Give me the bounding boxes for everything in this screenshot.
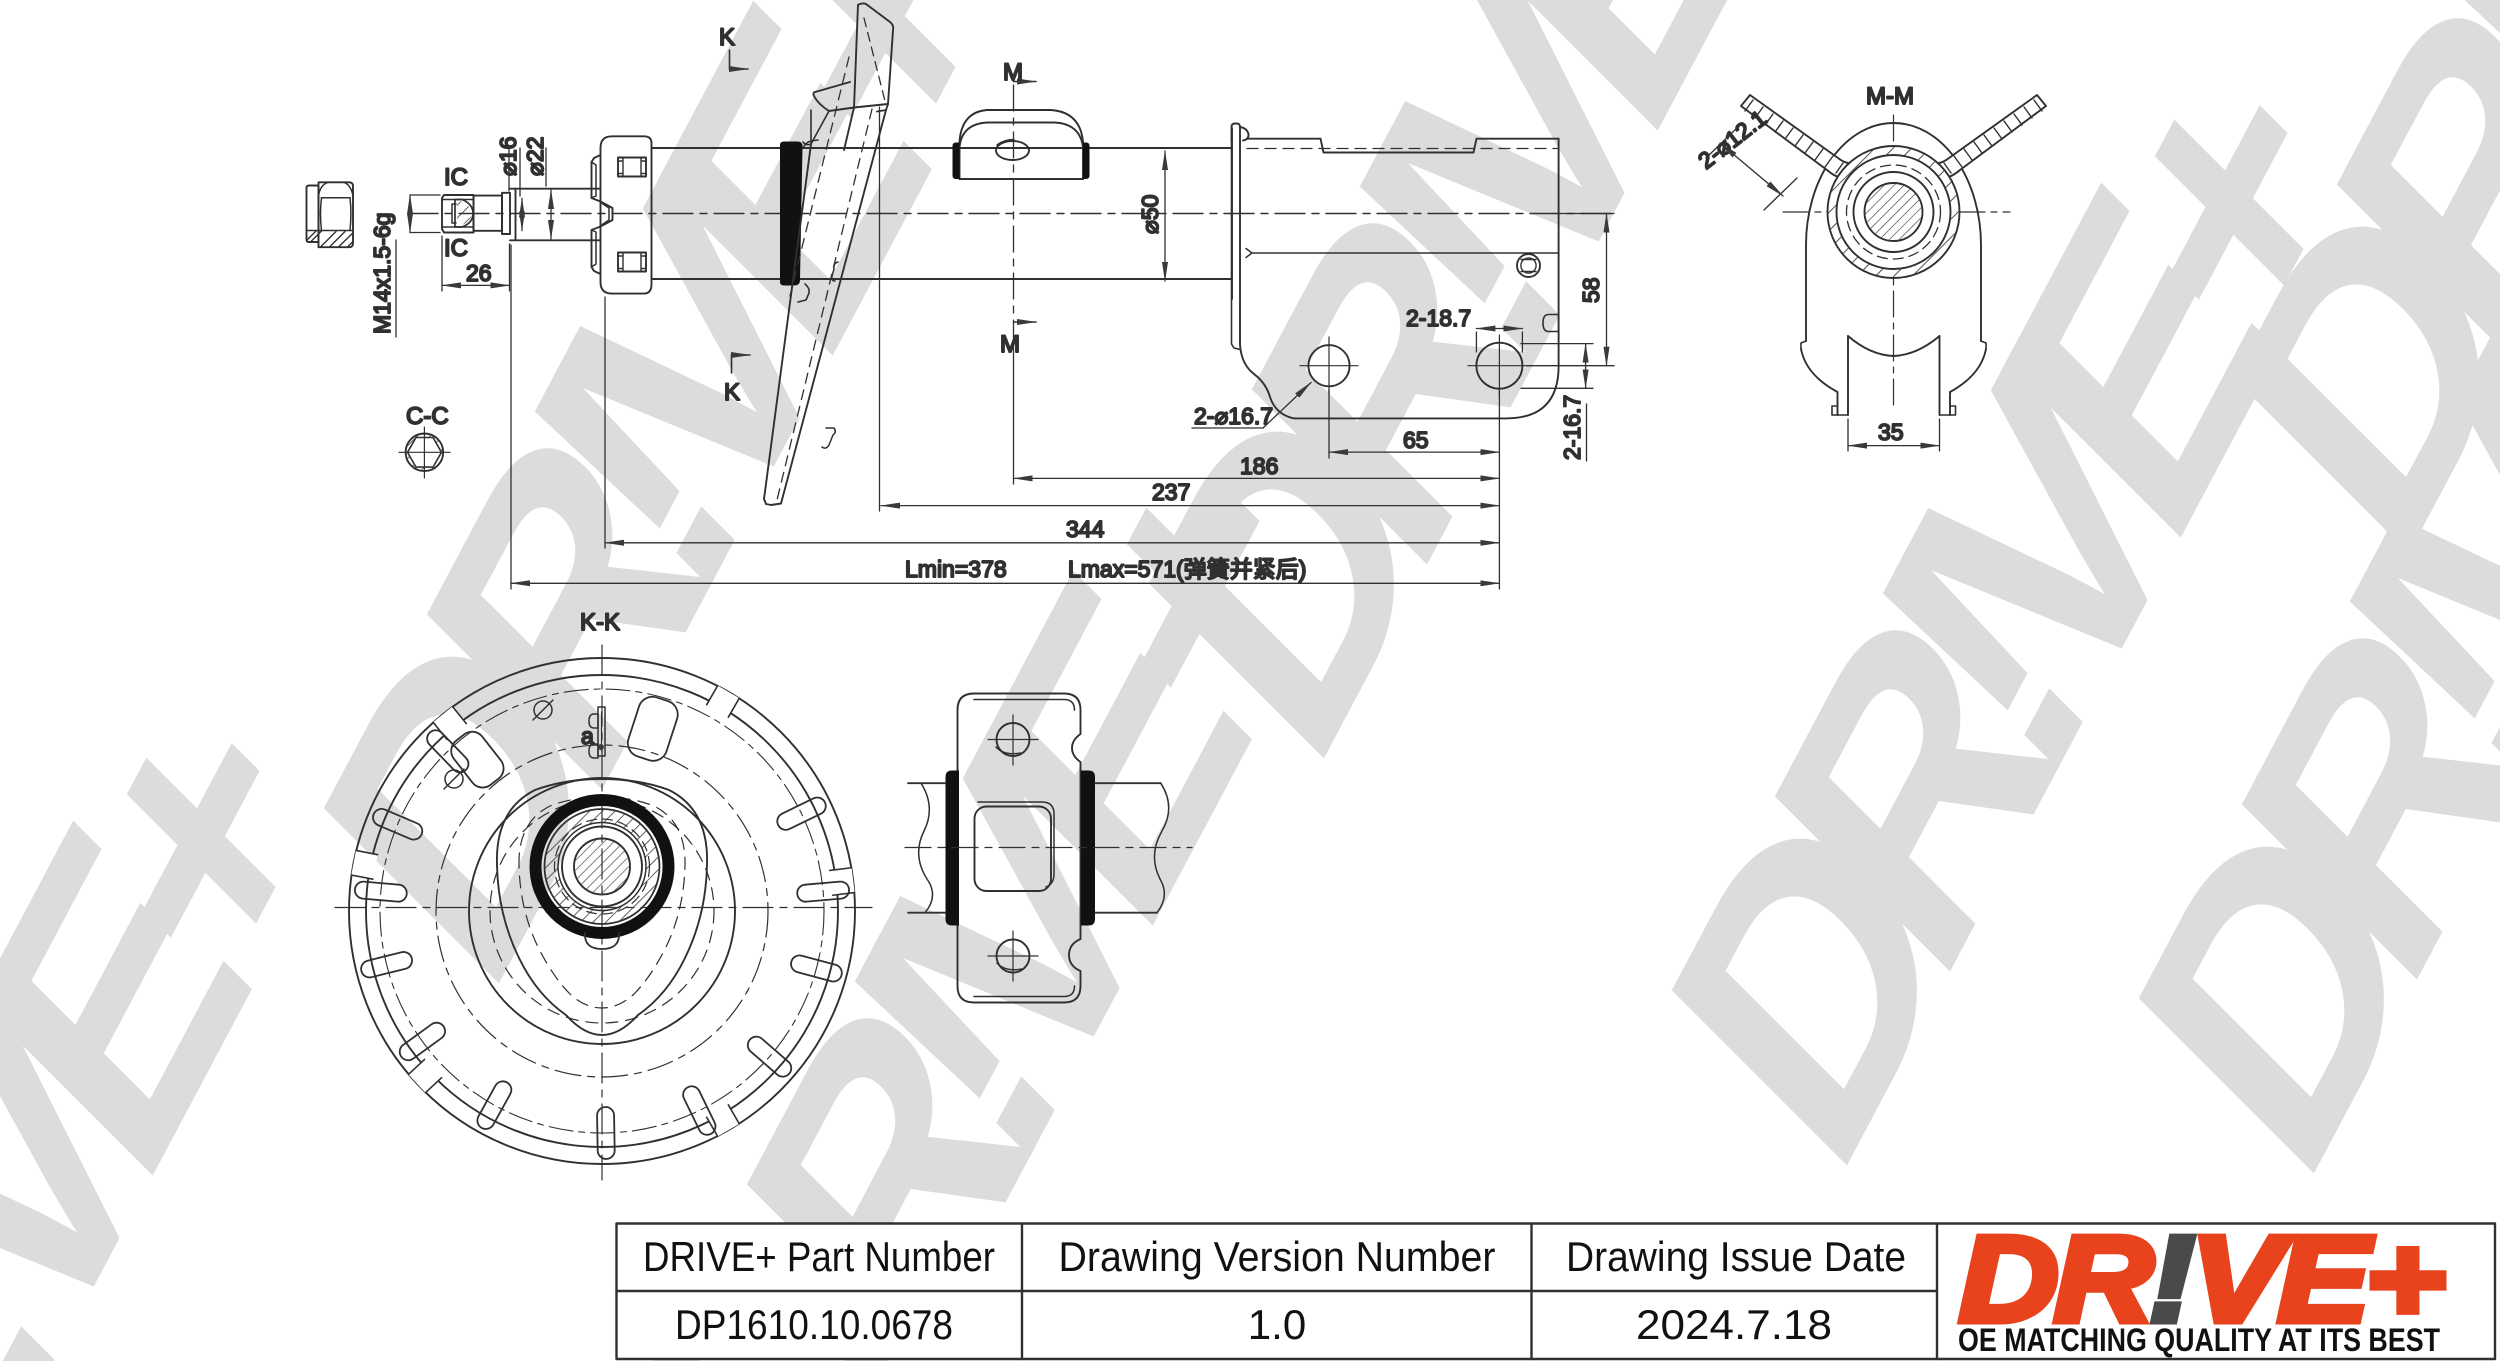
- svg-text:2-⌀16.7: 2-⌀16.7: [1194, 403, 1273, 429]
- svg-text:35: 35: [1878, 419, 1904, 445]
- svg-text:IC: IC: [444, 164, 468, 191]
- svg-text:IC: IC: [444, 235, 468, 262]
- svg-text:Lmax=571(弹簧并紧后): Lmax=571(弹簧并紧后): [1068, 556, 1306, 582]
- svg-text:237: 237: [1152, 479, 1190, 505]
- svg-text:M14x1.5-6g: M14x1.5-6g: [369, 213, 395, 334]
- svg-text:⌀50: ⌀50: [1137, 195, 1163, 234]
- svg-text:2-16.7: 2-16.7: [1559, 395, 1585, 460]
- svg-text:344: 344: [1066, 516, 1105, 542]
- svg-text:58: 58: [1578, 277, 1604, 303]
- svg-text:K: K: [724, 379, 740, 406]
- svg-text:DP1610.10.0678: DP1610.10.0678: [675, 1301, 953, 1348]
- svg-text:M: M: [1000, 331, 1020, 358]
- svg-text:Drawing Version Number: Drawing Version Number: [1059, 1233, 1496, 1280]
- svg-text:Lmin=378: Lmin=378: [905, 556, 1007, 582]
- svg-text:M-M: M-M: [1866, 83, 1914, 110]
- svg-text:DRIVE+ Part Number: DRIVE+ Part Number: [643, 1233, 995, 1280]
- svg-text:OE MATCHING QUALITY AT ITS BES: OE MATCHING QUALITY AT ITS BEST: [1958, 1322, 2440, 1358]
- svg-text:186: 186: [1240, 453, 1278, 479]
- svg-text:Drawing Issue Date: Drawing Issue Date: [1566, 1233, 1906, 1280]
- svg-text:1.0: 1.0: [1248, 1301, 1306, 1348]
- svg-text:C-C: C-C: [406, 403, 449, 430]
- svg-text:2024.7.18: 2024.7.18: [1636, 1301, 1832, 1348]
- svg-text:⌀22: ⌀22: [522, 137, 548, 176]
- svg-text:K: K: [719, 24, 735, 51]
- svg-text:K-K: K-K: [580, 609, 620, 636]
- svg-text:65: 65: [1403, 427, 1429, 453]
- svg-text:26: 26: [466, 260, 492, 286]
- svg-text:2-18.7: 2-18.7: [1406, 305, 1471, 331]
- svg-text:⌀16: ⌀16: [495, 137, 521, 176]
- svg-text:a: a: [581, 723, 594, 749]
- svg-text:M: M: [1003, 59, 1023, 86]
